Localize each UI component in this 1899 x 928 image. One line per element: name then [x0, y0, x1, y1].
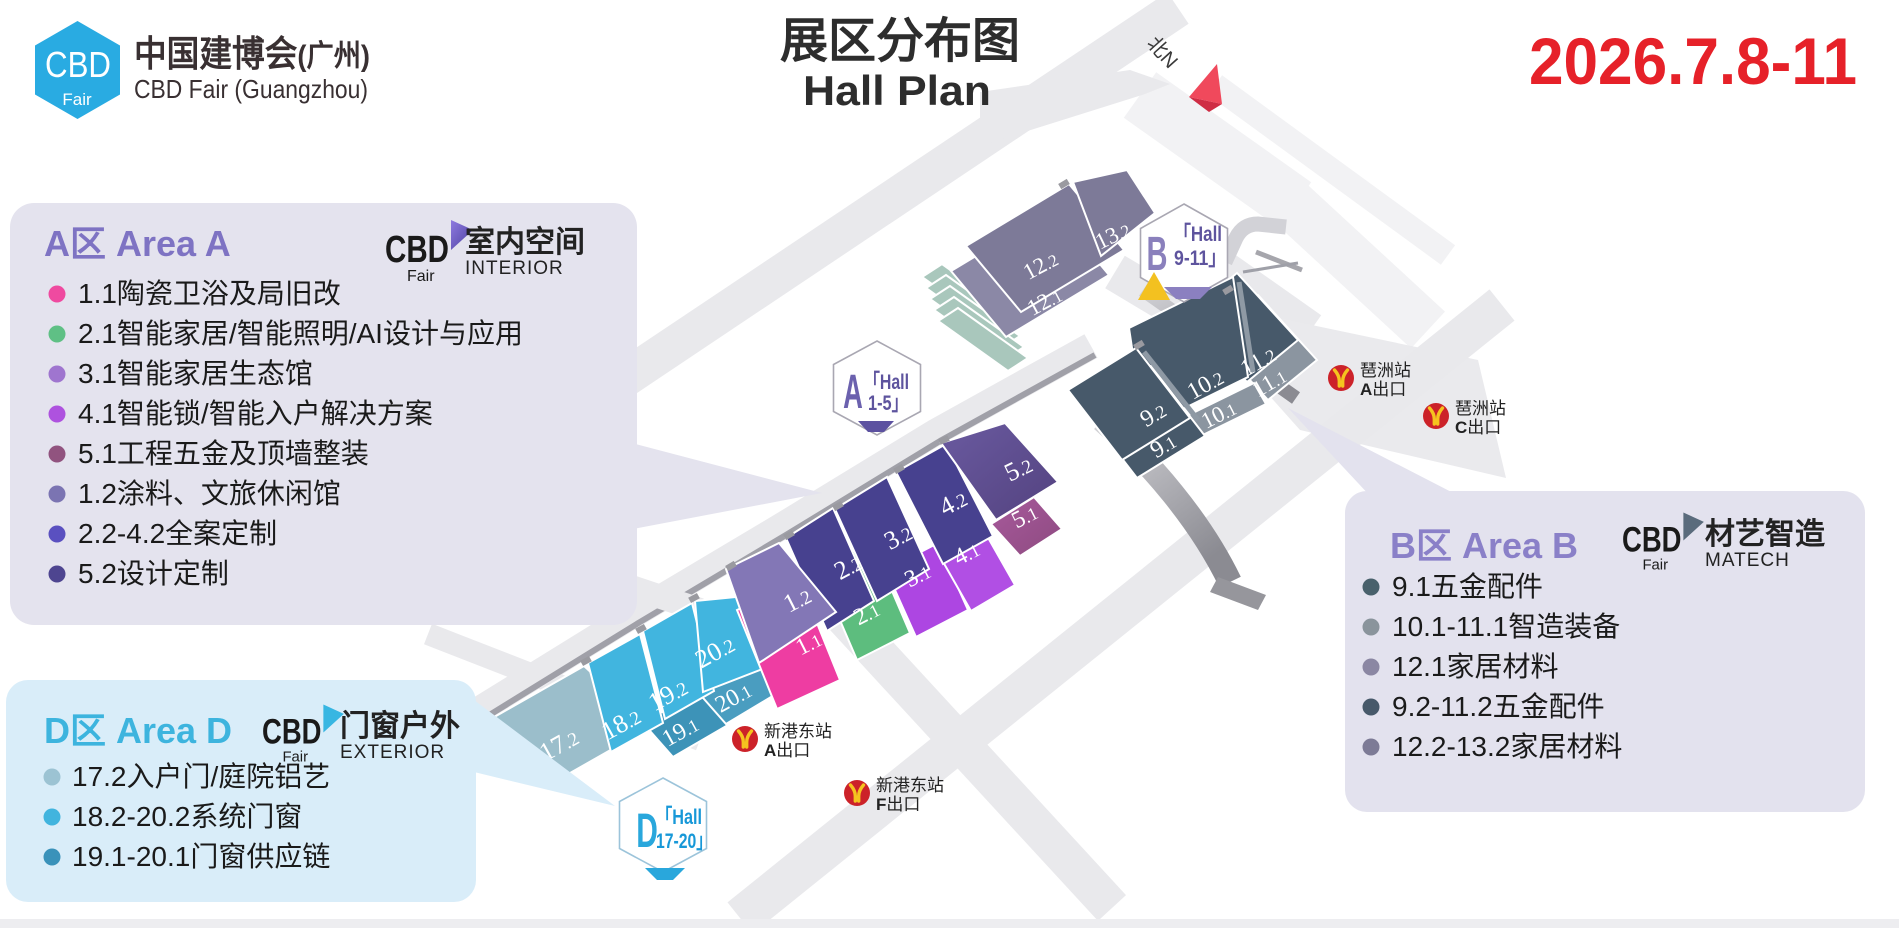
svg-text:A出口: A出口 — [764, 741, 810, 760]
svg-text:EXTERIOR: EXTERIOR — [340, 742, 445, 763]
svg-text:A出口: A出口 — [1360, 380, 1406, 399]
svg-text:B: B — [1147, 228, 1168, 281]
svg-text:17-20」: 17-20」 — [656, 830, 712, 853]
svg-text:室内空间: 室内空间 — [465, 225, 585, 259]
svg-text:4.1智能锁/智能入户解决方案: 4.1智能锁/智能入户解决方案 — [78, 398, 433, 429]
svg-text:D区 Area D: D区 Area D — [44, 710, 232, 751]
svg-text:CBD: CBD — [262, 713, 322, 752]
svg-text:Fair: Fair — [407, 268, 435, 285]
svg-text:中国建博会(广州): 中国建博会(广州) — [134, 33, 370, 74]
svg-text:1.2涂料、文旅休闲馆: 1.2涂料、文旅休闲馆 — [78, 478, 341, 509]
svg-text:新港东站: 新港东站 — [764, 722, 832, 741]
svg-text:18.2-20.2系统门窗: 18.2-20.2系统门窗 — [72, 801, 302, 832]
svg-text:Hall Plan: Hall Plan — [803, 67, 991, 114]
svg-text:MATECH: MATECH — [1705, 550, 1790, 571]
svg-text:2.1智能家居/智能照明/AI设计与应用: 2.1智能家居/智能照明/AI设计与应用 — [78, 318, 523, 349]
svg-text:5.2设计定制: 5.2设计定制 — [78, 558, 229, 589]
svg-text:Fair: Fair — [62, 90, 92, 109]
svg-text:D: D — [636, 804, 658, 858]
svg-text:12.1家居材料: 12.1家居材料 — [1392, 651, 1559, 682]
svg-text:CBD: CBD — [45, 44, 111, 85]
svg-text:C出口: C出口 — [1455, 418, 1501, 437]
svg-text:B区 Area B: B区 Area B — [1390, 525, 1578, 566]
svg-text:「Hall: 「Hall — [864, 371, 909, 394]
svg-text:19.1-20.1门窗供应链: 19.1-20.1门窗供应链 — [72, 841, 330, 872]
svg-text:12.2-13.2家居材料: 12.2-13.2家居材料 — [1392, 731, 1622, 762]
svg-text:材艺智造: 材艺智造 — [1705, 518, 1825, 551]
svg-text:Fair: Fair — [1642, 557, 1668, 573]
svg-text:9.2-11.2五金配件: 9.2-11.2五金配件 — [1392, 691, 1605, 722]
svg-text:10.1-11.1智造装备: 10.1-11.1智造装备 — [1392, 611, 1620, 642]
svg-text:3.1智能家居生态馆: 3.1智能家居生态馆 — [78, 358, 313, 389]
svg-text:展区分布图: 展区分布图 — [780, 15, 1020, 68]
svg-text:9-11」: 9-11」 — [1174, 247, 1226, 270]
svg-text:1.1陶瓷卫浴及局旧改: 1.1陶瓷卫浴及局旧改 — [78, 278, 341, 309]
svg-text:1-5」: 1-5」 — [868, 392, 908, 415]
svg-text:F出口: F出口 — [876, 795, 920, 814]
svg-text:「Hall: 「Hall — [1174, 223, 1222, 246]
svg-text:「Hall: 「Hall — [656, 806, 702, 829]
svg-text:琶洲站: 琶洲站 — [1455, 399, 1506, 418]
svg-text:CBD: CBD — [385, 229, 449, 271]
svg-text:INTERIOR: INTERIOR — [465, 258, 564, 279]
svg-text:新港东站: 新港东站 — [876, 776, 944, 795]
svg-text:CBD Fair (Guangzhou): CBD Fair (Guangzhou) — [134, 74, 368, 104]
svg-text:17.2入户门/庭院铝艺: 17.2入户门/庭院铝艺 — [72, 761, 330, 792]
svg-text:CBD: CBD — [1622, 521, 1682, 560]
svg-text:门窗户外: 门窗户外 — [340, 709, 460, 743]
svg-text:2.2-4.2全案定制: 2.2-4.2全案定制 — [78, 518, 277, 549]
svg-text:2026.7.8-11: 2026.7.8-11 — [1529, 24, 1857, 98]
svg-text:A: A — [843, 365, 863, 419]
svg-text:9.1五金配件: 9.1五金配件 — [1392, 571, 1543, 602]
svg-text:琶洲站: 琶洲站 — [1360, 361, 1411, 380]
svg-text:A区 Area A: A区 Area A — [44, 223, 231, 264]
svg-text:5.1工程五金及顶墙整装: 5.1工程五金及顶墙整装 — [78, 438, 369, 469]
